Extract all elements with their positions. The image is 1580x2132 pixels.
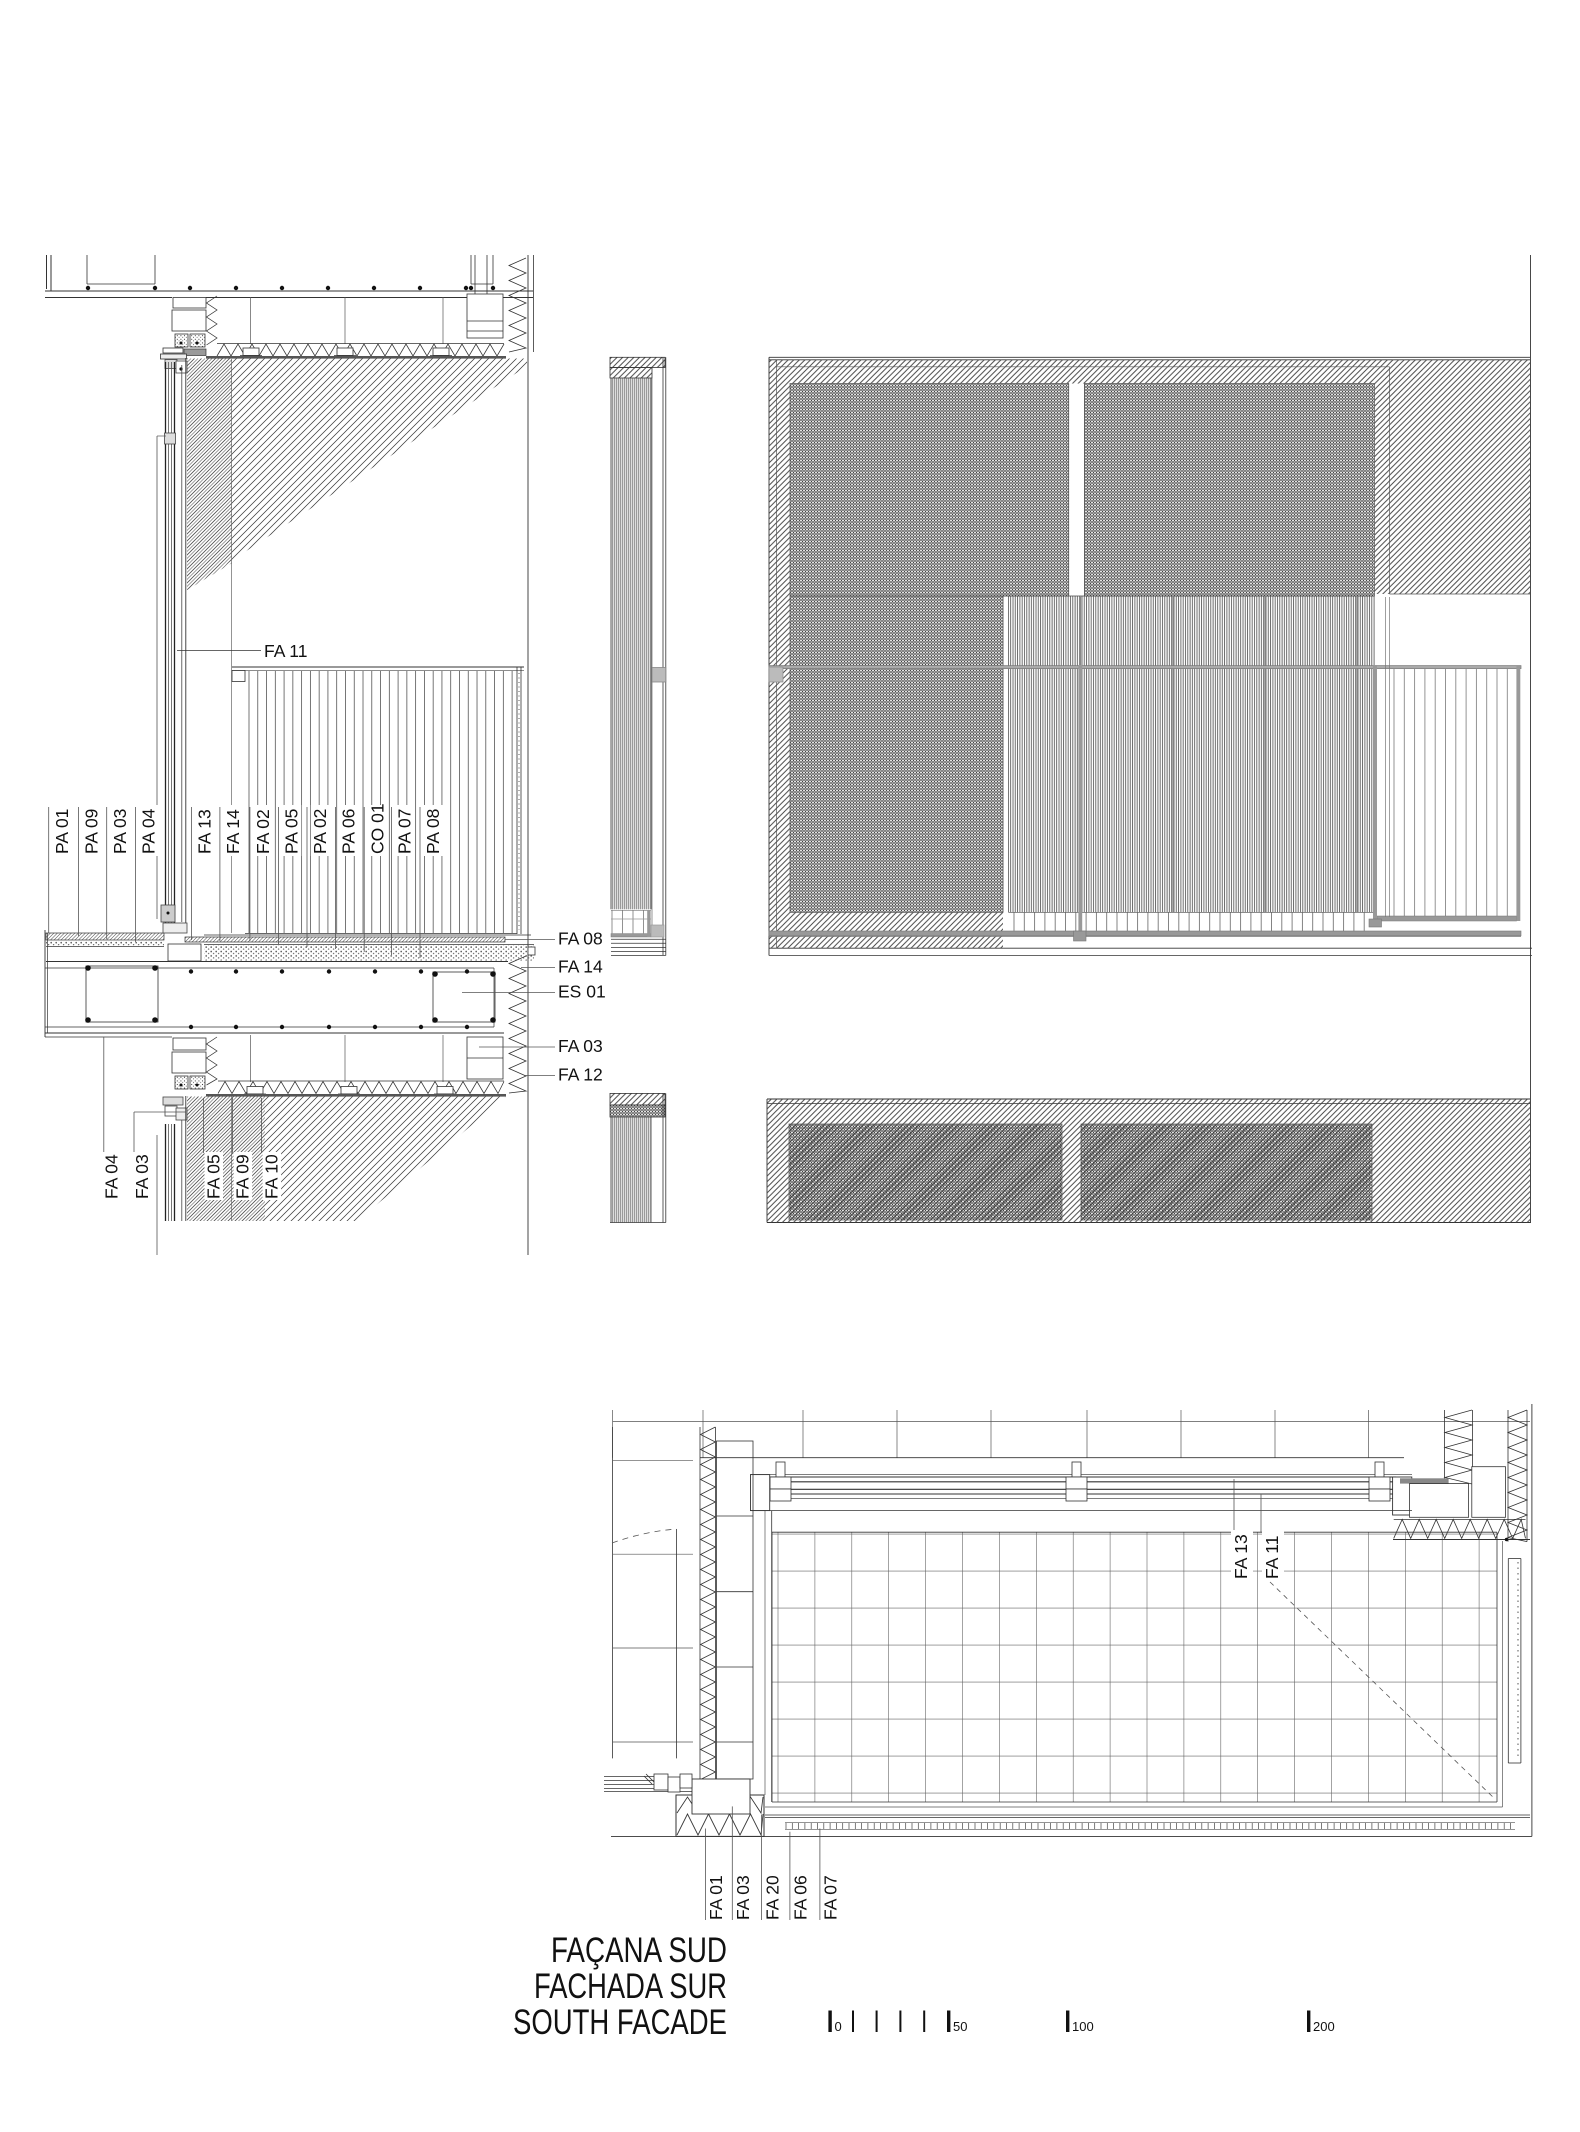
svg-text:FA 13: FA 13 — [195, 809, 215, 854]
svg-text:PA 09: PA 09 — [82, 809, 102, 854]
svg-text:FA 04: FA 04 — [102, 1154, 122, 1199]
svg-text:FA 10: FA 10 — [261, 1154, 281, 1199]
svg-text:PA 08: PA 08 — [423, 809, 443, 854]
svg-text:PA 04: PA 04 — [139, 808, 159, 854]
svg-text:FA 01: FA 01 — [706, 1875, 726, 1920]
svg-text:FA 12: FA 12 — [558, 1065, 603, 1085]
svg-text:FA 14: FA 14 — [558, 957, 603, 977]
svg-text:SOUTH FACADE: SOUTH FACADE — [513, 2003, 727, 2042]
svg-text:0: 0 — [835, 2019, 842, 2034]
svg-text:FA 20: FA 20 — [762, 1875, 782, 1920]
svg-text:FA 03: FA 03 — [733, 1875, 753, 1920]
svg-text:ES 01: ES 01 — [558, 982, 606, 1002]
svg-text:PA 07: PA 07 — [395, 809, 415, 854]
svg-text:FA 05: FA 05 — [203, 1154, 223, 1199]
svg-text:FA 13: FA 13 — [1231, 1534, 1251, 1579]
svg-text:FA 11: FA 11 — [264, 641, 307, 661]
svg-text:PA 03: PA 03 — [110, 809, 130, 854]
svg-text:FACHADA SUR: FACHADA SUR — [534, 1967, 727, 2006]
svg-text:FA 06: FA 06 — [791, 1875, 811, 1920]
svg-text:100: 100 — [1072, 2019, 1094, 2034]
svg-text:FA 03: FA 03 — [132, 1154, 152, 1199]
svg-text:FA 03: FA 03 — [558, 1036, 603, 1056]
svg-text:FA 07: FA 07 — [821, 1875, 841, 1920]
svg-text:50: 50 — [953, 2019, 967, 2034]
svg-text:200: 200 — [1313, 2019, 1335, 2034]
svg-text:FA 09: FA 09 — [232, 1154, 252, 1199]
svg-text:FAÇANA SUD: FAÇANA SUD — [551, 1931, 727, 1970]
svg-text:PA 01: PA 01 — [52, 809, 72, 854]
svg-text:FA 02: FA 02 — [253, 809, 273, 854]
svg-text:PA 02: PA 02 — [310, 809, 330, 854]
svg-text:FA 11: FA 11 — [1262, 1536, 1282, 1579]
svg-text:PA 06: PA 06 — [339, 809, 359, 854]
svg-text:PA 05: PA 05 — [282, 809, 302, 854]
svg-text:CO 01: CO 01 — [367, 803, 387, 854]
svg-text:FA 08: FA 08 — [558, 929, 603, 949]
svg-text:FA 14: FA 14 — [223, 809, 243, 854]
